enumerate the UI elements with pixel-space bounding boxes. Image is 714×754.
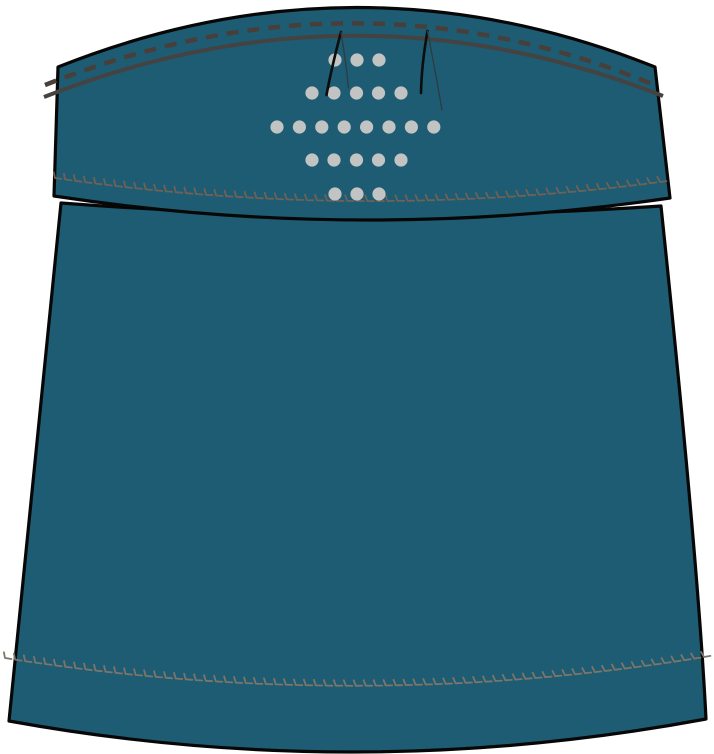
perforation-dot [328,187,341,200]
perforation-dot [382,120,395,133]
perforation-dot [327,86,340,99]
perforation-dot [372,86,385,99]
perforation-dot [350,86,363,99]
perforation-dot [350,187,363,200]
skirt-panel-layer [9,203,706,752]
perforation-dot [305,153,318,166]
perforation-dot [270,120,283,133]
perforation-dot [315,120,328,133]
perforation-dot [350,53,363,66]
perforation-dot [405,120,418,133]
skort-flat-sketch-svg [0,0,714,754]
perforation-dot [338,120,351,133]
perforation-dot [372,53,385,66]
skirt-panel [9,203,706,752]
perforation-dot [394,153,407,166]
perforation-dot [372,153,385,166]
perforation-dot [360,120,373,133]
perforation-dot [293,120,306,133]
garment-illustration [0,0,714,754]
perforation-dot [305,86,318,99]
perforation-dot [350,153,363,166]
perforation-dot [372,187,385,200]
perforation-dot [394,86,407,99]
perforation-dot [427,120,440,133]
perforation-dot [327,153,340,166]
